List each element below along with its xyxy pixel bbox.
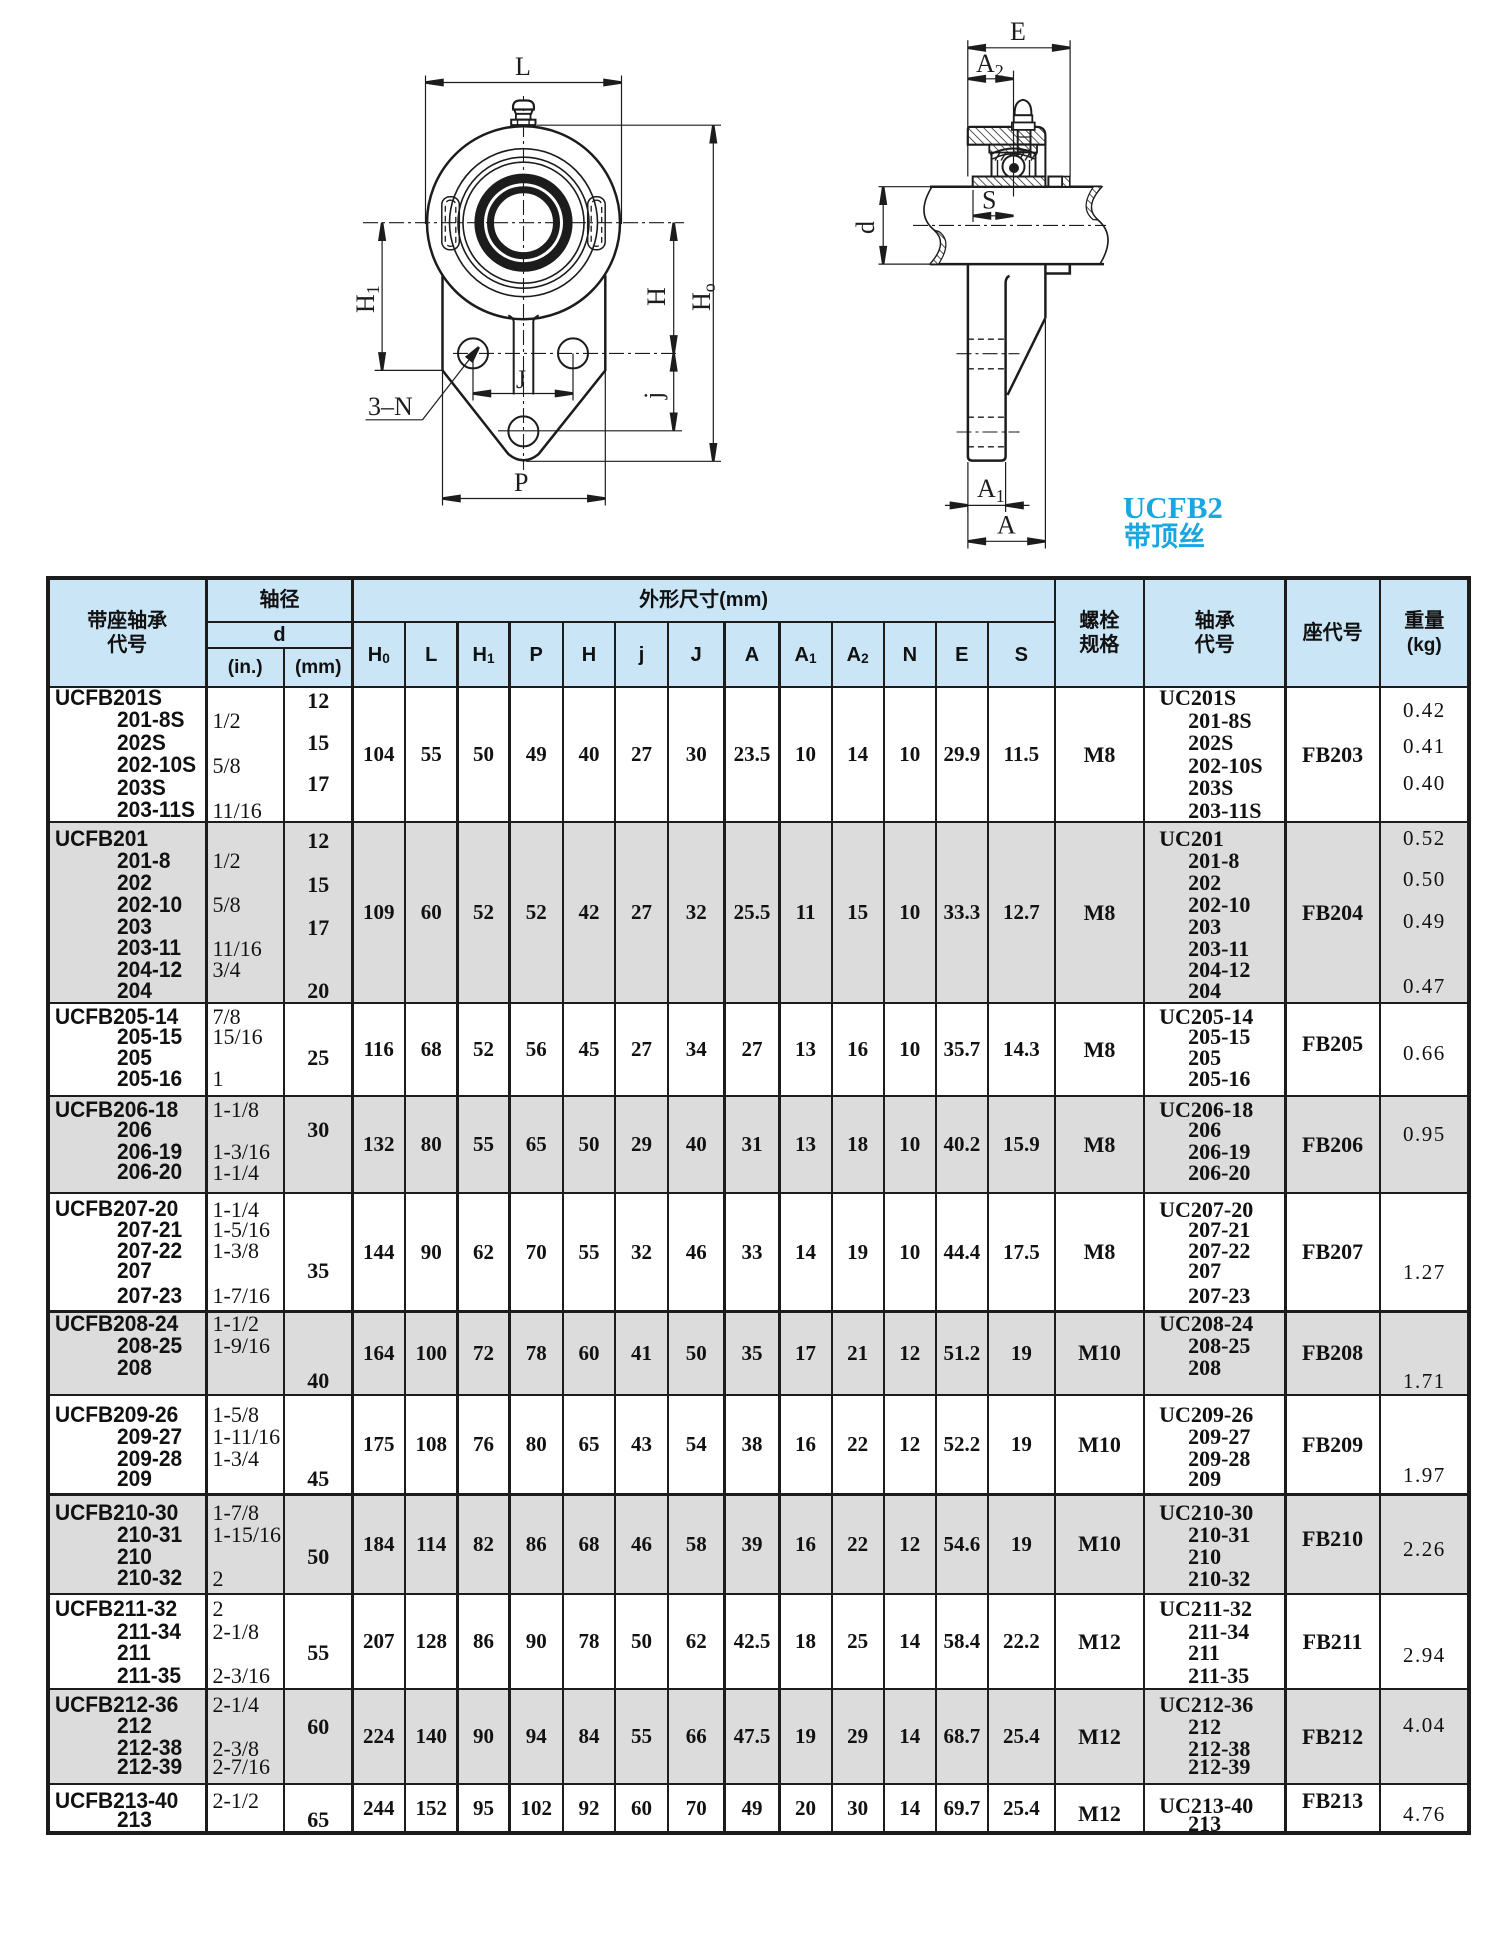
svg-text:3–N: 3–N: [368, 392, 413, 421]
svg-text:j: j: [639, 392, 668, 400]
svg-text:带顶丝: 带顶丝: [1124, 522, 1205, 552]
svg-text:E: E: [1010, 17, 1026, 46]
svg-text:P: P: [514, 468, 528, 497]
svg-text:J: J: [516, 365, 526, 394]
svg-text:UCFB2: UCFB2: [1123, 490, 1223, 525]
svg-text:d: d: [851, 221, 880, 234]
svg-text:S: S: [982, 186, 996, 215]
svg-text:A: A: [997, 511, 1016, 540]
svg-text:A1: A1: [977, 474, 1005, 506]
svg-text:Ho: Ho: [687, 283, 719, 311]
svg-text:H: H: [642, 287, 671, 306]
svg-text:L: L: [515, 52, 531, 81]
svg-text:H1: H1: [351, 285, 383, 313]
svg-text:A2: A2: [976, 49, 1004, 81]
